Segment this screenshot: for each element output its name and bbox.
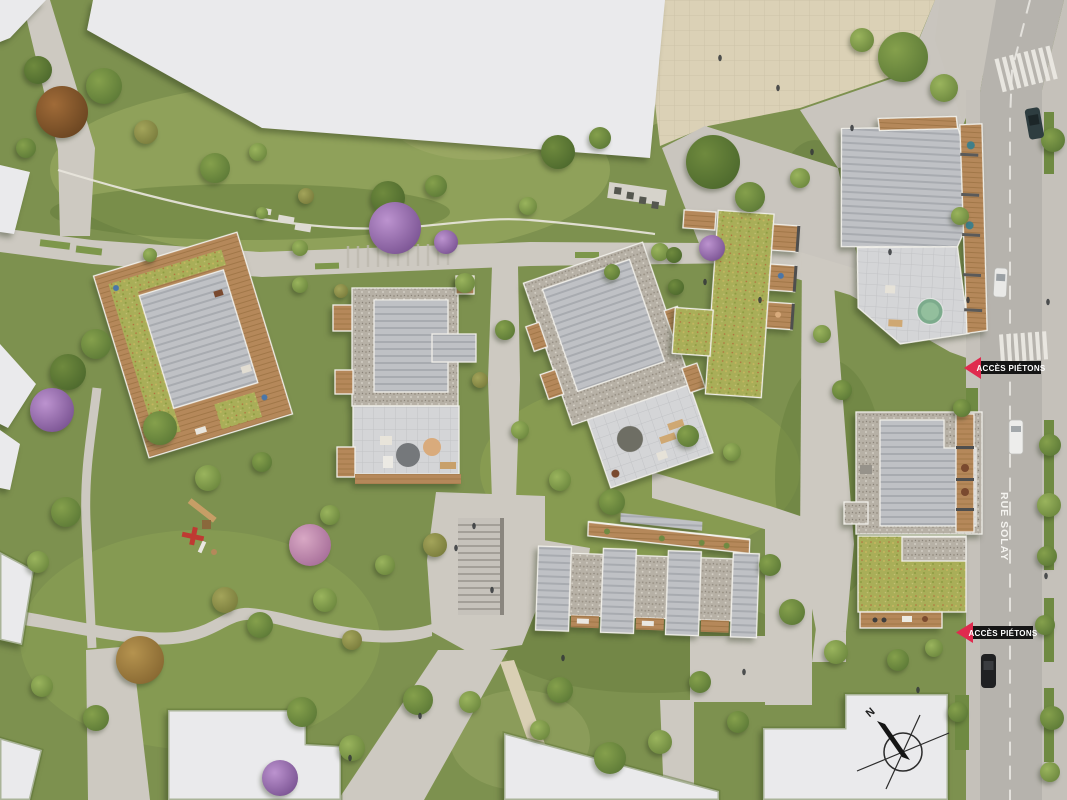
site-plan: ACCÈS PIÉTONS ACCÈS PIÉTONS RUE SOLAY N: [0, 0, 1067, 800]
site-plan-canvas: ACCÈS PIÉTONS ACCÈS PIÉTONS RUE SOLAY N: [0, 0, 1067, 800]
van: [1009, 420, 1023, 454]
acces-pietons-top-text: ACCÈS PIÉTONS: [976, 364, 1045, 373]
car: [981, 654, 996, 688]
outdoor-stairs: [458, 518, 504, 615]
acces-pietons-bottom-text: ACCÈS PIÉTONS: [968, 629, 1037, 638]
building-f: [844, 412, 982, 534]
rue-solay-road: [955, 0, 1067, 800]
car: [993, 268, 1007, 298]
street-name-label: RUE SOLAY: [998, 492, 1010, 561]
building-b: [333, 276, 476, 484]
